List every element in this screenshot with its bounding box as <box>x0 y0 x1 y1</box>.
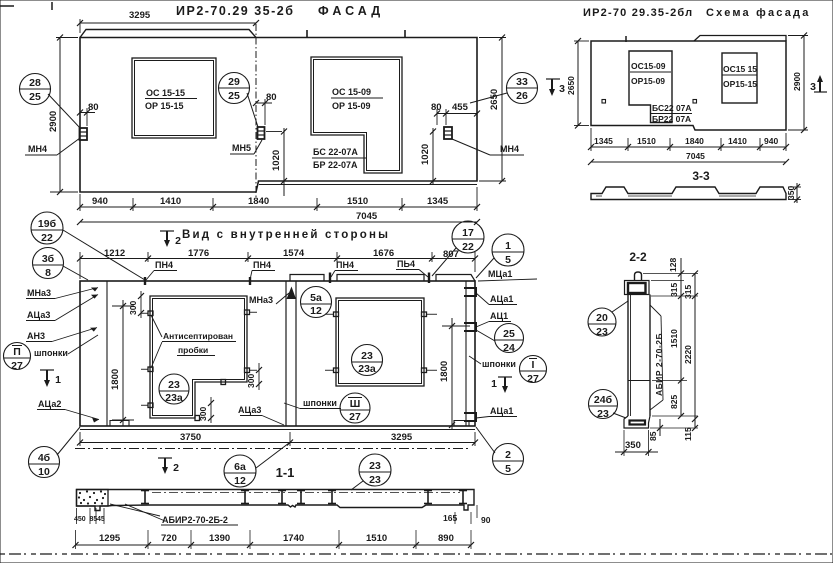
svg-text:1410: 1410 <box>728 136 747 146</box>
svg-text:4б: 4б <box>38 452 51 464</box>
svg-text:7045: 7045 <box>686 151 705 161</box>
svg-text:10: 10 <box>38 466 50 478</box>
svg-text:1676: 1676 <box>373 248 394 259</box>
svg-text:24б: 24б <box>594 394 613 406</box>
svg-text:ПН4: ПН4 <box>253 260 271 270</box>
svg-text:ПН4: ПН4 <box>155 260 173 270</box>
svg-text:165: 165 <box>443 513 457 523</box>
svg-text:1390: 1390 <box>209 533 230 544</box>
svg-text:2-2: 2-2 <box>629 250 647 264</box>
svg-text:2220: 2220 <box>683 345 693 364</box>
svg-text:128: 128 <box>668 258 678 272</box>
svg-text:МНа3: МНа3 <box>249 295 273 305</box>
svg-text:3: 3 <box>559 83 565 95</box>
svg-text:12: 12 <box>310 305 322 317</box>
svg-text:315: 315 <box>669 283 679 297</box>
svg-text:МН5: МН5 <box>232 143 251 153</box>
svg-text:29: 29 <box>228 76 240 88</box>
svg-text:1: 1 <box>491 378 497 390</box>
svg-text:80: 80 <box>88 102 99 113</box>
svg-text:1510: 1510 <box>347 196 368 207</box>
svg-text:940: 940 <box>92 196 108 207</box>
svg-text:19б: 19б <box>38 218 57 230</box>
svg-text:5: 5 <box>505 463 511 475</box>
svg-text:1840: 1840 <box>685 136 704 146</box>
svg-text:115: 115 <box>683 427 693 441</box>
svg-text:ИР2-70 29.35-2бл: ИР2-70 29.35-2бл <box>583 7 693 19</box>
svg-text:1800: 1800 <box>439 361 450 382</box>
svg-text:890: 890 <box>438 533 454 544</box>
svg-text:П: П <box>13 346 21 358</box>
svg-text:БР22 07А: БР22 07А <box>652 114 691 124</box>
svg-text:23а: 23а <box>358 363 376 375</box>
svg-text:1800: 1800 <box>110 369 121 390</box>
svg-text:12: 12 <box>234 475 246 487</box>
svg-text:АБИР 2-70-2Б: АБИР 2-70-2Б <box>654 333 664 396</box>
svg-text:300: 300 <box>128 301 138 315</box>
svg-text:300: 300 <box>246 374 256 388</box>
svg-text:1: 1 <box>55 374 61 386</box>
svg-text:27: 27 <box>349 411 361 423</box>
svg-text:БС 22-07А: БС 22-07А <box>313 147 358 157</box>
svg-text:ФАСАД: ФАСАД <box>318 4 384 18</box>
svg-text:2900: 2900 <box>792 72 802 91</box>
svg-text:2650: 2650 <box>489 89 500 110</box>
svg-text:1020: 1020 <box>420 144 431 165</box>
svg-text:6а: 6а <box>234 461 246 473</box>
svg-text:8: 8 <box>45 267 51 279</box>
svg-text:27: 27 <box>527 373 539 385</box>
svg-text:1840: 1840 <box>248 196 269 207</box>
svg-text:ОР15-15: ОР15-15 <box>723 79 757 89</box>
svg-text:720: 720 <box>161 533 177 544</box>
svg-text:БС22 07А: БС22 07А <box>652 103 692 113</box>
svg-text:МН4: МН4 <box>500 144 519 154</box>
svg-text:23: 23 <box>369 460 381 472</box>
svg-text:940: 940 <box>764 136 778 146</box>
svg-text:АЦ1: АЦ1 <box>490 311 508 321</box>
svg-text:3: 3 <box>810 81 816 93</box>
svg-text:33: 33 <box>516 76 528 88</box>
svg-text:20: 20 <box>596 312 608 324</box>
svg-text:ИР2-70.29 35-2б: ИР2-70.29 35-2б <box>176 4 294 18</box>
svg-text:455: 455 <box>452 102 469 113</box>
svg-text:25: 25 <box>29 91 41 103</box>
svg-text:АЦа3: АЦа3 <box>27 310 50 320</box>
svg-text:Схема фасада: Схема фасада <box>706 7 811 19</box>
svg-text:350: 350 <box>786 186 796 200</box>
svg-text:1020: 1020 <box>271 150 282 171</box>
svg-text:5: 5 <box>505 254 511 266</box>
svg-text:АЦа3: АЦа3 <box>238 405 261 415</box>
svg-text:1776: 1776 <box>188 248 209 259</box>
svg-text:1295: 1295 <box>99 533 121 544</box>
svg-text:ПН4: ПН4 <box>336 260 354 270</box>
svg-text:23: 23 <box>361 350 373 362</box>
svg-text:23: 23 <box>168 379 180 391</box>
svg-text:27: 27 <box>11 360 23 372</box>
svg-text:3295: 3295 <box>129 10 151 21</box>
svg-text:85: 85 <box>648 431 658 441</box>
svg-text:шпонки: шпонки <box>482 359 516 369</box>
svg-text:3-3: 3-3 <box>692 169 710 183</box>
svg-text:26: 26 <box>516 90 528 102</box>
svg-text:45: 45 <box>97 516 105 523</box>
svg-text:25: 25 <box>228 90 240 102</box>
svg-text:90: 90 <box>481 515 491 525</box>
svg-text:1510: 1510 <box>366 533 387 544</box>
svg-text:2650: 2650 <box>566 76 576 95</box>
svg-text:1345: 1345 <box>427 196 449 207</box>
svg-text:Антисептирован: Антисептирован <box>163 331 233 341</box>
svg-text:1510: 1510 <box>637 136 656 146</box>
svg-text:80: 80 <box>266 92 277 103</box>
svg-text:МЦа1: МЦа1 <box>488 269 512 279</box>
svg-text:ОР15-09: ОР15-09 <box>631 76 665 86</box>
svg-text:ПЬ4: ПЬ4 <box>397 259 415 269</box>
svg-text:АБИР2-70-2Б-2: АБИР2-70-2Б-2 <box>162 515 228 525</box>
svg-text:АН3: АН3 <box>27 331 45 341</box>
svg-text:1345: 1345 <box>594 136 613 146</box>
svg-text:17: 17 <box>462 227 474 239</box>
svg-text:АЦа2: АЦа2 <box>38 399 61 409</box>
svg-text:Вид с внутренней стороны: Вид с внутренней стороны <box>182 229 390 241</box>
svg-text:2: 2 <box>175 235 181 247</box>
svg-text:300: 300 <box>198 407 208 421</box>
svg-text:350: 350 <box>625 440 641 451</box>
svg-text:2: 2 <box>173 462 179 474</box>
svg-text:I: I <box>532 359 535 371</box>
svg-text:23: 23 <box>369 474 381 486</box>
svg-text:1: 1 <box>505 240 511 252</box>
svg-text:3295: 3295 <box>391 432 413 443</box>
svg-text:шпонки: шпонки <box>34 348 68 358</box>
svg-text:1410: 1410 <box>160 196 181 207</box>
svg-text:28: 28 <box>29 77 41 89</box>
svg-text:АЦа1: АЦа1 <box>490 294 513 304</box>
svg-text:1510: 1510 <box>669 329 679 348</box>
svg-text:23: 23 <box>596 326 608 338</box>
svg-text:24: 24 <box>503 342 515 354</box>
svg-text:ОС 15-09: ОС 15-09 <box>332 87 371 97</box>
svg-text:ОР 15-09: ОР 15-09 <box>332 101 371 111</box>
svg-text:ОС15-09: ОС15-09 <box>631 61 666 71</box>
svg-text:ОС 15-15: ОС 15-15 <box>146 88 185 98</box>
svg-text:МН4: МН4 <box>28 144 47 154</box>
svg-text:пробки: пробки <box>178 345 208 355</box>
svg-text:1574: 1574 <box>283 248 305 259</box>
svg-text:3б: 3б <box>42 253 55 265</box>
svg-text:7045: 7045 <box>356 211 378 222</box>
svg-text:825: 825 <box>669 395 679 409</box>
svg-text:АЦа1: АЦа1 <box>490 406 513 416</box>
svg-text:1-1: 1-1 <box>276 465 295 480</box>
svg-text:2: 2 <box>505 449 511 461</box>
svg-text:БР 22-07А: БР 22-07А <box>313 160 358 170</box>
svg-text:315: 315 <box>683 285 693 299</box>
svg-text:Ш: Ш <box>350 398 361 410</box>
svg-text:22: 22 <box>462 241 474 253</box>
svg-text:23: 23 <box>597 408 609 420</box>
svg-text:1740: 1740 <box>283 533 304 544</box>
svg-text:25: 25 <box>503 328 515 340</box>
svg-text:450: 450 <box>74 516 86 523</box>
svg-text:22: 22 <box>41 232 53 244</box>
svg-text:5а: 5а <box>310 292 322 304</box>
svg-text:2900: 2900 <box>48 111 59 132</box>
svg-text:80: 80 <box>431 102 442 113</box>
svg-text:МНа3: МНа3 <box>27 288 51 298</box>
svg-text:ОС15 15: ОС15 15 <box>723 64 757 74</box>
svg-text:23а: 23а <box>165 392 183 404</box>
svg-text:3750: 3750 <box>180 432 201 443</box>
svg-text:ОР 15-15: ОР 15-15 <box>145 101 184 111</box>
svg-text:шпонки: шпонки <box>303 398 337 408</box>
